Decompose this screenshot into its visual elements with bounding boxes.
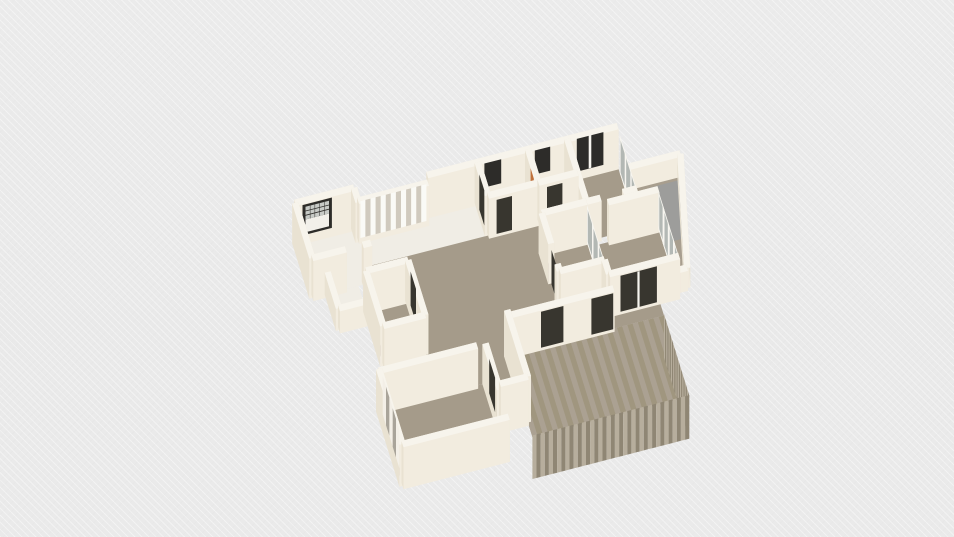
closet-slat-doors-strip [391,192,396,230]
deck-fascia-south-strip [578,423,582,468]
deck-door-2 [591,293,613,335]
deck-fascia-east-strip [677,355,678,402]
bedroom-right-window-wall-mullion [658,191,659,233]
deck-fascia-south-strip [557,428,561,473]
deck-fascia-south-strip [611,414,615,459]
closet-slat-doors-strip [365,199,370,237]
deck-fascia-south-strip [623,411,627,456]
deck-fascia-south-strip [607,415,611,460]
balcony-sliding-door-divider [637,271,639,308]
floorplan-3d-viewport[interactable] [0,0,954,537]
closet-slat-doors-strip [396,191,401,229]
room-f-east-glazing-mullion [620,135,621,175]
deck-fascia-south-strip [660,402,664,447]
room-a-grid-window-grid-v [319,203,320,216]
bedroom-right-north-wall-face [607,199,609,245]
room-a-grid-window-grid-v [310,206,311,219]
deck-fascia-south-strip [541,432,545,477]
room-i-glass-partition-mullion [587,205,588,246]
deck-fascia-east-strip [672,340,673,387]
deck-fascia-east-strip [673,343,674,390]
deck-fascia-south-strip [619,412,623,457]
deck-fascia-south-strip [574,424,578,469]
deck-fascia-south-strip [652,404,656,449]
closet-slat-doors-strip [376,196,381,234]
deck-fascia-south-strip [582,422,586,467]
deck-fascia-south-strip [598,417,602,462]
closet-slat-doors-strip [401,190,406,228]
deck-fascia-east-strip [667,325,668,372]
closet-slat-doors-strip [371,197,376,235]
deck-fascia-south-strip [631,409,635,454]
deck-fascia-south-strip [669,399,673,444]
deck-fascia-south-strip [590,420,594,465]
deck-fascia-south-strip [664,400,668,445]
deck-fascia-south-strip [685,395,689,440]
deck-fascia-south-strip [532,434,536,479]
closet-slat-doors-strip [381,195,386,233]
deck-fascia-south-strip [603,416,607,461]
bath-1-door [497,196,512,234]
deck-fascia-east-strip [664,314,665,361]
deck-fascia-south-strip [677,397,681,442]
deck-fascia-south-strip [627,410,631,455]
closet-slat-doors-strip [411,187,416,225]
bath-1-south-wall-face [487,192,489,238]
deck-fascia-south-strip [570,425,574,470]
deck-fascia-south-strip [640,407,644,452]
closet-m-south-wall-face [382,323,384,369]
closet-slat-doors-strip [406,188,411,226]
deck-fascia-east-strip [670,332,671,379]
closet-slat-doors-strip [386,193,391,231]
deck-fascia-south-strip [644,406,648,451]
floorplan-3d-render[interactable] [0,0,954,537]
deck-fascia-south-strip [561,427,565,472]
deck-fascia-south-strip [615,413,619,458]
deck-fascia-east-strip [666,321,667,368]
deck-fascia-south-strip [586,421,590,466]
room-a-grid-window-grid-v [315,204,316,217]
room-a-south-wall-left-face [311,255,313,301]
deck-fascia-east-strip [676,351,677,398]
deck-fascia-east-strip [669,329,670,376]
deck-fascia-south-strip [648,405,652,450]
deck-fascia-east-strip [671,336,672,383]
deck-fascia-south-strip [594,419,598,464]
deck-fascia-south-strip [673,398,677,443]
deck-fascia-south-strip [636,408,640,453]
deck-fascia-south-strip [537,433,541,478]
deck-fascia-east-strip [665,318,666,365]
deck-fascia-south-strip [549,430,553,475]
deck-fascia-south-strip [545,431,549,476]
closet-wall-slatted-face [357,198,359,244]
room-a-grid-window-grid-v [324,202,325,215]
deck-fascia-east-strip [674,347,675,394]
closet-slat-doors-strip [421,184,426,222]
deck-fascia-south-strip [681,396,685,441]
bedroom-sw-south-wall-face [402,441,404,489]
deck-fascia-south-strip [553,429,557,474]
deck-fascia-south-strip [656,403,660,448]
deck-door-1 [541,306,563,348]
deck-fascia-south-strip [565,426,569,471]
closet-slat-doors-strip [360,200,365,238]
closet-slat-doors-strip [416,186,421,224]
room-f-window-mullion [589,135,592,169]
